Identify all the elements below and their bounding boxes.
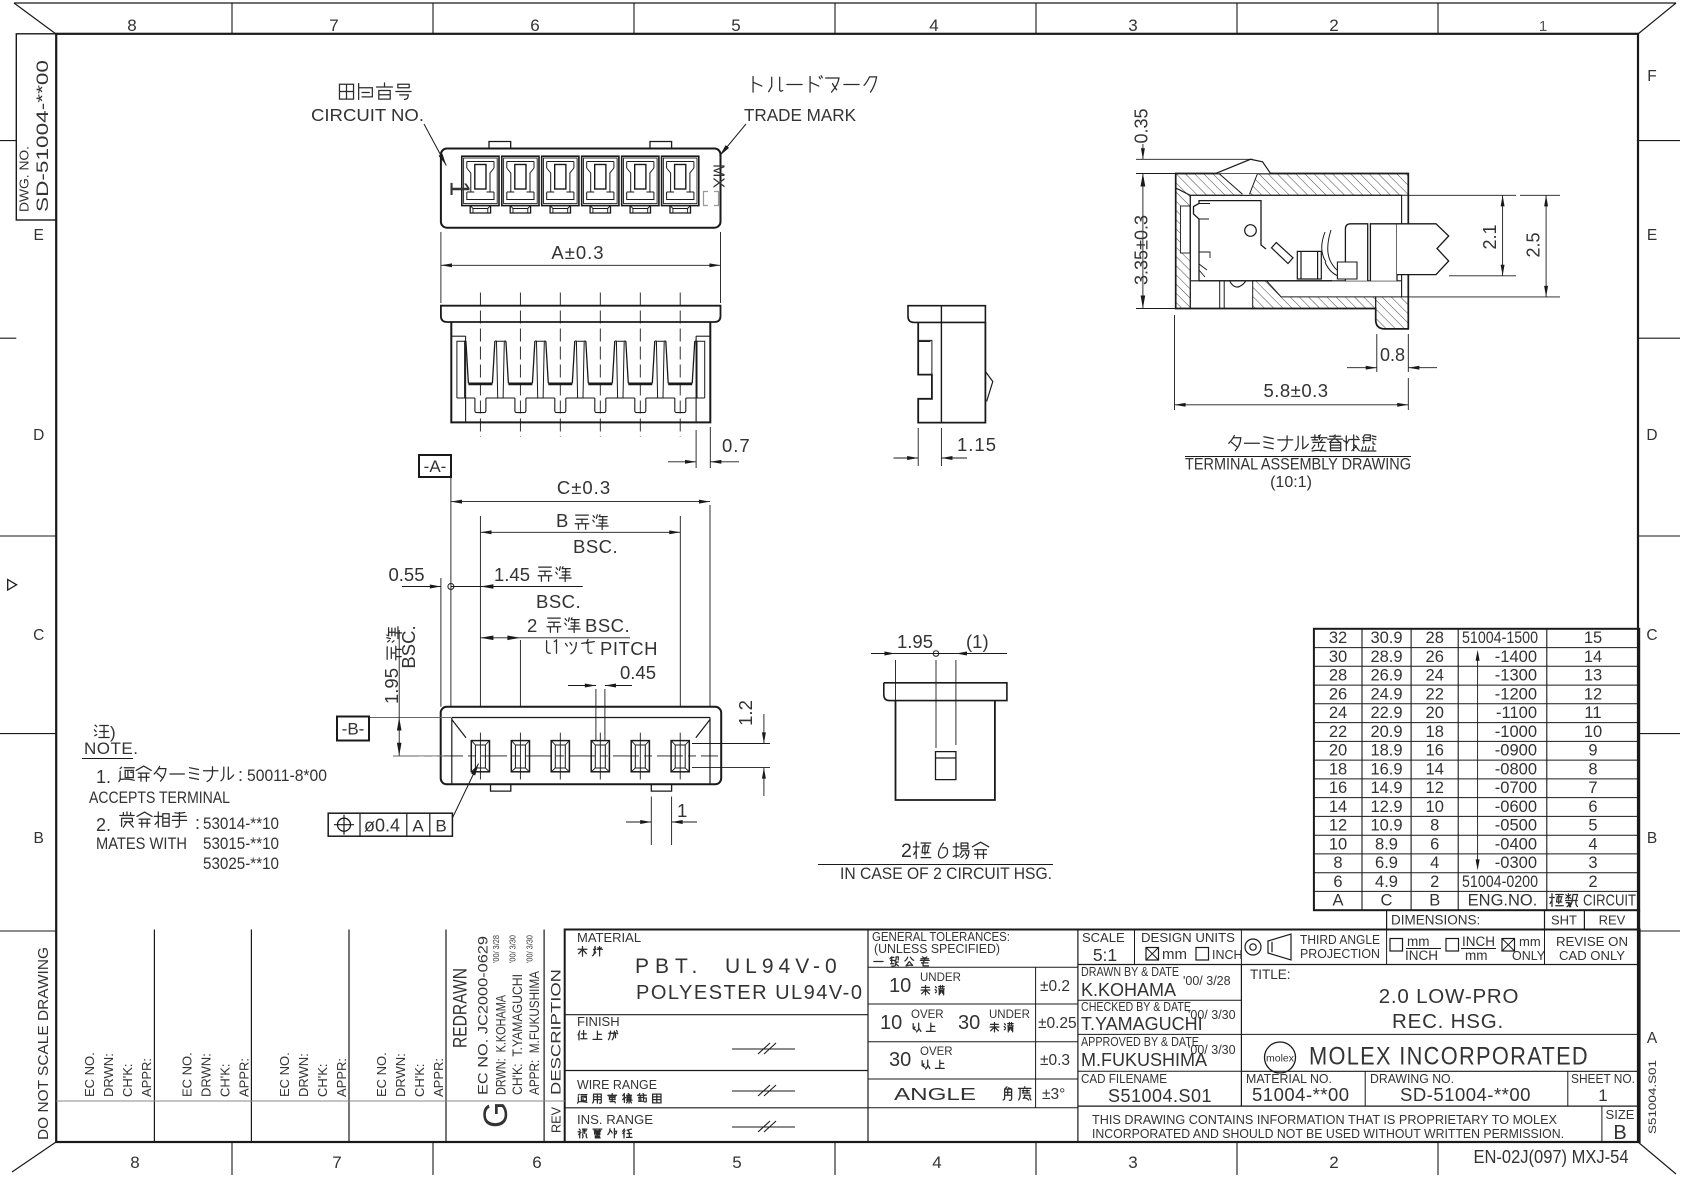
svg-text:mm: mm [1407, 934, 1430, 949]
svg-text:±3°: ±3° [1042, 1086, 1065, 1103]
svg-text:INCORPORATED AND SHOULD NOT BE: INCORPORATED AND SHOULD NOT BE USED WITH… [1092, 1126, 1564, 1141]
svg-text:2: 2 [1329, 16, 1338, 35]
svg-text:CH'K:: CH'K: [412, 1063, 427, 1097]
svg-text:THIRD ANGLE: THIRD ANGLE [1300, 932, 1380, 947]
svg-text:PITCH: PITCH [600, 638, 658, 659]
svg-text:26.9: 26.9 [1370, 667, 1402, 685]
svg-text:10: 10 [1426, 798, 1444, 816]
svg-text:53025-**10: 53025-**10 [203, 854, 279, 873]
svg-text:10.9: 10.9 [1370, 817, 1402, 835]
svg-text:ANGLE: ANGLE [894, 1084, 976, 1104]
svg-text:B: B [556, 510, 568, 531]
svg-text:2: 2 [1430, 873, 1439, 891]
svg-text:4: 4 [1588, 835, 1597, 853]
svg-text:-1000: -1000 [1495, 723, 1537, 741]
svg-text:APPROVED BY & DATE: APPROVED BY & DATE [1081, 1035, 1199, 1049]
svg-text:-0700: -0700 [1495, 779, 1537, 797]
svg-text:3: 3 [1128, 16, 1137, 35]
svg-text:13: 13 [1584, 667, 1602, 685]
svg-text:S51004.S01: S51004.S01 [1647, 1060, 1659, 1134]
svg-text:mm: mm [1465, 948, 1488, 963]
svg-text:UNDER: UNDER [920, 972, 961, 984]
svg-text:±0.2: ±0.2 [1040, 978, 1070, 995]
svg-text:EC NO.: EC NO. [374, 1052, 389, 1097]
svg-text:DRWN:: DRWN: [199, 1053, 214, 1097]
svg-text:REV: REV [1599, 913, 1626, 928]
svg-text:UNDER: UNDER [989, 1009, 1030, 1021]
svg-text:16.9: 16.9 [1370, 760, 1402, 778]
svg-text:CAD FILENAME: CAD FILENAME [1081, 1072, 1167, 1086]
svg-text:5: 5 [732, 1153, 741, 1172]
svg-text:6: 6 [1588, 798, 1597, 816]
svg-text:THIS DRAWING CONTAINS INFORMAT: THIS DRAWING CONTAINS INFORMATION THAT I… [1092, 1112, 1557, 1127]
svg-text:B: B [1613, 1122, 1626, 1144]
svg-text:15: 15 [1584, 629, 1602, 647]
svg-text:TERMINAL ASSEMBLY DRAWING: TERMINAL ASSEMBLY DRAWING [1185, 456, 1411, 474]
svg-text:B: B [1429, 892, 1440, 910]
svg-text:-0900: -0900 [1495, 742, 1537, 760]
svg-text:10: 10 [1329, 835, 1347, 853]
svg-text:T.YAMAGUCHI: T.YAMAGUCHI [1081, 1014, 1203, 1034]
svg-text:K.KOHAMA: K.KOHAMA [1081, 980, 1176, 1000]
svg-text:E: E [34, 227, 44, 244]
svg-text:DESCRIPTION: DESCRIPTION [549, 969, 564, 1095]
svg-text:DRWN:: DRWN: [393, 1053, 408, 1097]
svg-text:-0500: -0500 [1495, 817, 1537, 835]
svg-text:±0.3: ±0.3 [1040, 1052, 1070, 1069]
svg-text:DESIGN UNITS: DESIGN UNITS [1141, 930, 1235, 945]
svg-text:-A-: -A- [424, 457, 447, 476]
svg-text:7: 7 [332, 1153, 341, 1172]
svg-text:18: 18 [1329, 760, 1347, 778]
svg-text:EC NO.: EC NO. [277, 1052, 292, 1097]
svg-text:POLYESTER UL94V-0: POLYESTER UL94V-0 [636, 982, 863, 1004]
svg-text:12: 12 [1329, 817, 1347, 835]
svg-text:MATERIAL: MATERIAL [577, 930, 641, 945]
svg-text:18.9: 18.9 [1370, 742, 1402, 760]
svg-text:7: 7 [329, 16, 338, 35]
svg-text:4: 4 [932, 1153, 941, 1172]
svg-text:-B-: -B- [342, 720, 365, 739]
svg-text:DRWN:: DRWN: [101, 1053, 116, 1097]
svg-text:'00/ 3/30: '00/ 3/30 [525, 935, 535, 963]
svg-text:28: 28 [1329, 667, 1347, 685]
svg-text:6: 6 [532, 1153, 541, 1172]
svg-text:6.9: 6.9 [1375, 854, 1398, 872]
svg-text:CAD ONLY: CAD ONLY [1559, 948, 1625, 963]
svg-text:F: F [1647, 68, 1656, 85]
svg-text:14: 14 [1584, 648, 1602, 666]
svg-text:S51004.S01: S51004.S01 [1108, 1086, 1212, 1106]
svg-text:PBT.: PBT. [635, 955, 703, 978]
svg-text:C: C [1381, 892, 1393, 910]
svg-text:'00/ 3/28: '00/ 3/28 [1183, 974, 1231, 988]
svg-text:MOLEX INCORPORATED: MOLEX INCORPORATED [1309, 1043, 1589, 1071]
svg-text:1: 1 [1598, 1086, 1607, 1105]
svg-text:20: 20 [1426, 704, 1444, 722]
svg-text:CH'K:: CH'K: [315, 1063, 330, 1097]
svg-text:6: 6 [1333, 873, 1342, 891]
svg-text:C±0.3: C±0.3 [557, 477, 611, 498]
svg-text:22: 22 [1426, 685, 1444, 703]
svg-text:0.8: 0.8 [1380, 345, 1405, 365]
svg-text:3: 3 [1588, 854, 1597, 872]
svg-text:8: 8 [1430, 817, 1439, 835]
svg-text:4: 4 [929, 16, 938, 35]
svg-text:APPR:: APPR: [431, 1058, 446, 1097]
svg-text:51004-**00: 51004-**00 [1252, 1084, 1350, 1105]
svg-text:INCH: INCH [1462, 934, 1495, 949]
svg-text:TITLE:: TITLE: [1250, 967, 1291, 982]
svg-text:18: 18 [1426, 723, 1444, 741]
svg-text:2: 2 [1588, 873, 1597, 891]
svg-text:DRAWN BY & DATE: DRAWN BY & DATE [1081, 965, 1179, 979]
svg-text:UL94V-0: UL94V-0 [725, 955, 842, 978]
svg-text:SIZE: SIZE [1606, 1107, 1635, 1122]
svg-text:B: B [34, 830, 44, 847]
svg-text:30: 30 [889, 1049, 911, 1071]
svg-text:30.9: 30.9 [1370, 629, 1402, 647]
svg-text:SD-51004-**00: SD-51004-**00 [1400, 1084, 1531, 1105]
svg-text:OVER: OVER [920, 1046, 953, 1058]
svg-text:51004-0200: 51004-0200 [1462, 873, 1538, 891]
svg-text:APPR:: APPR: [139, 1058, 154, 1097]
svg-text:EC NO. JC2000-0629: EC NO. JC2000-0629 [475, 936, 491, 1095]
svg-text:B: B [435, 817, 446, 836]
svg-text:(1): (1) [966, 631, 989, 652]
svg-text:2: 2 [527, 615, 537, 636]
svg-text:7: 7 [1588, 779, 1597, 797]
svg-text:APPR:: APPR: [334, 1058, 349, 1097]
svg-text:D: D [1646, 427, 1657, 444]
svg-text:INCH: INCH [1212, 948, 1243, 962]
svg-text:'00/ 3/30: '00/ 3/30 [1188, 1043, 1236, 1057]
svg-text:DO NOT SCALE DRAWING: DO NOT SCALE DRAWING [36, 947, 52, 1140]
svg-text:6: 6 [1430, 835, 1439, 853]
svg-text:NOTE.: NOTE. [84, 739, 138, 758]
svg-text:'00/ 3/30: '00/ 3/30 [508, 935, 518, 963]
svg-text:DIMENSIONS:: DIMENSIONS: [1391, 913, 1480, 928]
svg-text:ACCEPTS TERMINAL: ACCEPTS TERMINAL [89, 789, 230, 807]
svg-text:8.9: 8.9 [1375, 835, 1398, 853]
svg-text:10: 10 [880, 1012, 902, 1034]
svg-text:FINISH: FINISH [577, 1014, 620, 1029]
svg-text:C: C [33, 627, 44, 644]
svg-text::: : [195, 813, 200, 833]
svg-text:IN CASE OF 2 CIRCUIT HSG.: IN CASE OF 2 CIRCUIT HSG. [840, 865, 1052, 883]
svg-text:1.2: 1.2 [735, 700, 756, 726]
svg-text:(10:1): (10:1) [1270, 474, 1312, 491]
svg-text:D: D [33, 427, 44, 444]
svg-text:30: 30 [1329, 648, 1347, 666]
svg-text:(UNLESS SPECIFIED): (UNLESS SPECIFIED) [874, 941, 1000, 956]
svg-text:12: 12 [1426, 779, 1444, 797]
svg-text:mm: mm [1519, 934, 1541, 949]
svg-text:DWG. NO.: DWG. NO. [18, 146, 32, 212]
svg-text:-0300: -0300 [1495, 854, 1537, 872]
svg-text:2.1: 2.1 [1480, 224, 1500, 249]
svg-text:26: 26 [1329, 685, 1347, 703]
svg-text:CIRCUIT NO.: CIRCUIT NO. [311, 105, 424, 125]
svg-text:REC. HSG.: REC. HSG. [1392, 1010, 1504, 1033]
svg-text:MATES WITH: MATES WITH [96, 835, 187, 853]
svg-text:MX: MX [710, 164, 727, 188]
svg-text:'00/ 3/28: '00/ 3/28 [491, 935, 501, 963]
svg-text:24: 24 [1426, 667, 1444, 685]
svg-text:0.7: 0.7 [722, 435, 751, 456]
svg-text:ONLY: ONLY [1512, 949, 1546, 963]
svg-text:E: E [1647, 227, 1657, 244]
svg-text:28: 28 [1426, 629, 1444, 647]
svg-text:8: 8 [127, 16, 136, 35]
svg-text::: : [238, 765, 243, 785]
svg-text:5.8±0.3: 5.8±0.3 [1263, 380, 1328, 401]
svg-text:EC NO.: EC NO. [82, 1052, 97, 1097]
svg-text:1: 1 [677, 800, 687, 821]
svg-text:BSC.: BSC. [398, 625, 419, 668]
svg-text:53015-**10: 53015-**10 [203, 834, 279, 853]
svg-text:5: 5 [731, 16, 740, 35]
svg-text:3.35±0.3: 3.35±0.3 [1132, 215, 1152, 285]
svg-text:SCALE: SCALE [1082, 930, 1125, 945]
svg-text:10: 10 [1584, 723, 1602, 741]
svg-text:4.9: 4.9 [1375, 873, 1398, 891]
svg-text:SD-51004-**00: SD-51004-**00 [33, 60, 52, 212]
svg-text:A±0.3: A±0.3 [551, 242, 604, 263]
svg-text:REV: REV [549, 1107, 564, 1133]
svg-text:9: 9 [1588, 742, 1597, 760]
svg-text:50011-8*00: 50011-8*00 [247, 766, 327, 785]
svg-text:EC NO.: EC NO. [180, 1052, 195, 1097]
svg-text:8: 8 [1588, 760, 1597, 778]
svg-text:8: 8 [1333, 854, 1342, 872]
svg-text:4: 4 [1430, 854, 1439, 872]
svg-text:22: 22 [1329, 723, 1347, 741]
svg-text:APPR: M.FUKUSHIMA: APPR: M.FUKUSHIMA [527, 971, 542, 1095]
svg-text:-1400: -1400 [1495, 648, 1537, 666]
svg-text:14.9: 14.9 [1370, 779, 1402, 797]
svg-text:-0400: -0400 [1495, 835, 1537, 853]
svg-text:CH'K:: CH'K: [120, 1063, 135, 1097]
svg-text:-1300: -1300 [1495, 667, 1537, 685]
svg-text:51004-1500: 51004-1500 [1462, 629, 1538, 647]
svg-text:A: A [1647, 1030, 1658, 1047]
svg-text:2.0 LOW-PRO: 2.0 LOW-PRO [1379, 985, 1520, 1008]
svg-text:EN-02J(097) MXJ-54: EN-02J(097) MXJ-54 [1474, 1147, 1629, 1167]
svg-text:-1100: -1100 [1496, 704, 1537, 722]
svg-text:ENG.NO.: ENG.NO. [1468, 892, 1538, 910]
svg-text:5:1: 5:1 [1093, 945, 1117, 965]
svg-text:14: 14 [1426, 760, 1444, 778]
svg-text:'00/ 3/30: '00/ 3/30 [1188, 1008, 1236, 1022]
svg-text:24.9: 24.9 [1370, 685, 1402, 703]
svg-text:PROJECTION: PROJECTION [1300, 946, 1380, 961]
svg-text:-0600: -0600 [1495, 798, 1537, 816]
svg-text:ø0.4: ø0.4 [364, 816, 400, 836]
svg-text:BSC.: BSC. [536, 591, 581, 612]
svg-text:SHEET NO.: SHEET NO. [1571, 1072, 1635, 1086]
svg-text:2.: 2. [96, 815, 111, 835]
svg-text:CH'K:: CH'K: [218, 1063, 233, 1097]
svg-text:11: 11 [1584, 704, 1601, 722]
svg-text:-1200: -1200 [1495, 685, 1537, 703]
svg-text:0.45: 0.45 [620, 662, 656, 683]
svg-text:8: 8 [130, 1153, 139, 1172]
svg-text:±0.25: ±0.25 [1038, 1015, 1077, 1032]
svg-text:12: 12 [1584, 685, 1602, 703]
svg-text:2: 2 [901, 840, 912, 862]
svg-text:0.55: 0.55 [389, 564, 425, 585]
svg-text:2: 2 [1329, 1153, 1338, 1172]
svg-text:20: 20 [1329, 742, 1347, 760]
svg-text:C: C [1646, 627, 1657, 644]
svg-text:1.45: 1.45 [494, 564, 530, 585]
svg-text:24: 24 [1329, 704, 1347, 722]
svg-text:CH'K: T.YAMAGUCHI: CH'K: T.YAMAGUCHI [510, 974, 525, 1095]
svg-text:A: A [1332, 892, 1343, 910]
svg-text:G: G [477, 1102, 515, 1128]
svg-text:REDRAWN: REDRAWN [451, 968, 472, 1048]
svg-text:16: 16 [1329, 779, 1347, 797]
svg-text:BSC.: BSC. [573, 536, 618, 557]
svg-text:APPR:: APPR: [237, 1058, 252, 1097]
svg-text:26: 26 [1426, 648, 1444, 666]
svg-text:OVER: OVER [911, 1009, 944, 1021]
svg-text:-0800: -0800 [1495, 760, 1537, 778]
svg-text:2.5: 2.5 [1524, 232, 1544, 257]
svg-text:SHT: SHT [1551, 913, 1577, 928]
svg-text:32: 32 [1329, 629, 1347, 647]
svg-text:A: A [412, 817, 424, 836]
svg-text:CIRCUIT: CIRCUIT [1583, 893, 1636, 910]
svg-text:20.9: 20.9 [1370, 723, 1402, 741]
svg-text:28.9: 28.9 [1370, 648, 1402, 666]
svg-text:1.15: 1.15 [957, 434, 997, 455]
svg-text:14: 14 [1329, 798, 1347, 816]
svg-text:53014-**10: 53014-**10 [203, 814, 279, 833]
svg-text:1: 1 [445, 181, 476, 197]
svg-text:WIRE RANGE: WIRE RANGE [577, 1077, 657, 1092]
svg-text:DRWN:: DRWN: [296, 1053, 311, 1097]
svg-text:BSC.: BSC. [585, 615, 630, 636]
svg-text:INS. RANGE: INS. RANGE [577, 1112, 653, 1127]
svg-text:INCH: INCH [1405, 948, 1438, 963]
svg-text:B: B [1647, 830, 1657, 847]
svg-text:5: 5 [1588, 817, 1597, 835]
svg-text:10: 10 [889, 975, 911, 997]
svg-text:12.9: 12.9 [1370, 798, 1402, 816]
svg-text:0.35: 0.35 [1132, 108, 1152, 143]
svg-text:3: 3 [1128, 1153, 1137, 1172]
svg-text:6: 6 [530, 16, 539, 35]
svg-text:1: 1 [1539, 18, 1547, 35]
svg-text:mm: mm [1162, 946, 1187, 963]
svg-text:22.9: 22.9 [1370, 704, 1402, 722]
svg-text:16: 16 [1426, 742, 1444, 760]
svg-text:1.: 1. [96, 767, 111, 787]
svg-text:REVISE ON: REVISE ON [1556, 934, 1628, 949]
svg-text:CHECKED BY & DATE: CHECKED BY & DATE [1081, 1000, 1191, 1014]
svg-text:30: 30 [958, 1012, 980, 1034]
svg-text:molex: molex [1266, 1053, 1295, 1065]
svg-text:TRADE MARK: TRADE MARK [744, 105, 856, 125]
svg-text:DRWN: K.KOHAMA: DRWN: K.KOHAMA [494, 995, 509, 1095]
svg-text:1.95: 1.95 [897, 631, 933, 652]
